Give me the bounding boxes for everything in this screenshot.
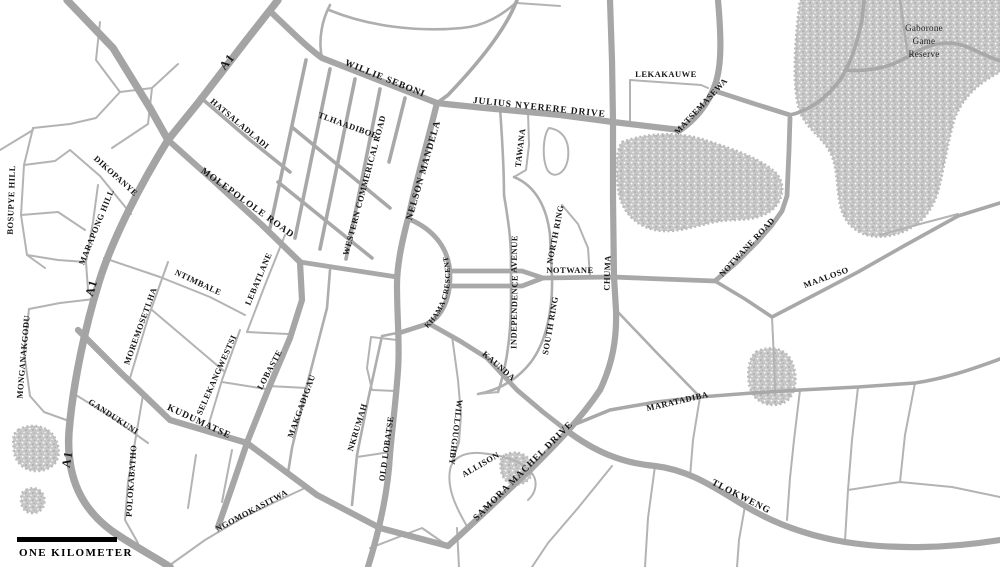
road-label-bosupye-hill: BOSUPYE HILL — [5, 165, 17, 235]
road-tlokweng — [566, 430, 1000, 547]
road-label-kaunda: KAUNDA — [480, 349, 517, 383]
road-label-lebatlane: LEBATLANE — [243, 251, 274, 307]
road-label-avenue: AVENUE — [509, 235, 520, 273]
scale-bar: ONE KILOMETER — [17, 537, 133, 559]
road-label-moremosetlha: MOREMOSETLHA — [122, 286, 159, 366]
road-label-nelson-mandela: NELSON MANDELA — [405, 120, 443, 222]
road-label-selekangwestsi: SELEKANGWESTSI — [194, 333, 239, 417]
road-label-notwane: NOTWANE — [546, 265, 593, 275]
game-reserve-label-line2: Game — [913, 36, 936, 46]
road-label-tlokweng: TLOKWENG — [710, 478, 772, 516]
svg-text:KHAMA CRESCENT: KHAMA CRESCENT — [423, 255, 453, 329]
road-label-nkrumah: NKRUMAH — [345, 402, 369, 452]
road-label-chuma: CHUMA — [601, 255, 612, 291]
road-label-notwane-road: NOTWANE ROAD — [717, 215, 777, 278]
road-a1-north — [67, 0, 168, 140]
road-label-polokabatho: POLOKABATHO — [123, 444, 138, 517]
game-reserve-area — [795, 0, 1000, 237]
road-label-lekakauwe: LEKAKAUWE — [635, 69, 697, 79]
road-label-tawana: TAWANA — [513, 127, 528, 167]
road-label-julius-nyerere-drive: JULIUS NYERERE DRIVE — [472, 96, 606, 120]
game-reserve-label-line3: Reserve — [908, 49, 939, 59]
road-willie-seboni-julius-nyerere — [273, 14, 680, 130]
map-canvas: A1 A1 A1 WILLIE SEBONI JULIUS NYERERE DR… — [0, 0, 1000, 567]
road-makgadigau — [288, 270, 330, 473]
road-label-makgadigau: MAKGADIGAU — [285, 373, 317, 439]
game-reserve-label-line1: Gaborone — [905, 23, 943, 33]
tree-patch-maratadiba — [748, 348, 795, 405]
tree-patch-southwest — [13, 426, 58, 471]
road-label-samora-machel-drive: SAMORA MACHEL DRIVE — [472, 420, 576, 524]
road-a1-south — [69, 140, 170, 567]
road-lobaste — [218, 262, 302, 527]
road-label-a1-bottom: A1 — [59, 450, 76, 469]
woodland-patch — [617, 134, 783, 231]
road-mall-loop — [452, 271, 543, 286]
scale-bar-label: ONE KILOMETER — [19, 547, 133, 559]
scale-bar-line — [17, 537, 117, 542]
road-label-maaloso: MAALOSO — [802, 264, 850, 290]
road-hatsaladladi — [200, 97, 290, 172]
road-label-independence: INDEPENDENCE — [508, 275, 519, 349]
road-label-khama-crescent: KHAMA CRESCENT — [423, 255, 453, 329]
road-ntimbale — [104, 258, 245, 315]
tree-patch-southwest-small — [21, 488, 45, 513]
road-label-hatsaladladi: HATSALADLADI — [208, 96, 271, 151]
road-molepolole — [168, 140, 300, 262]
road-label-north-ring: NORTH RING — [544, 204, 565, 265]
road-label-gandukuni: GANDUKUNI — [87, 397, 141, 437]
road-bosupye-hill — [21, 128, 45, 268]
road-monganakgodu — [24, 299, 94, 421]
road-label-south-ring: SOUTH RING — [540, 296, 560, 356]
